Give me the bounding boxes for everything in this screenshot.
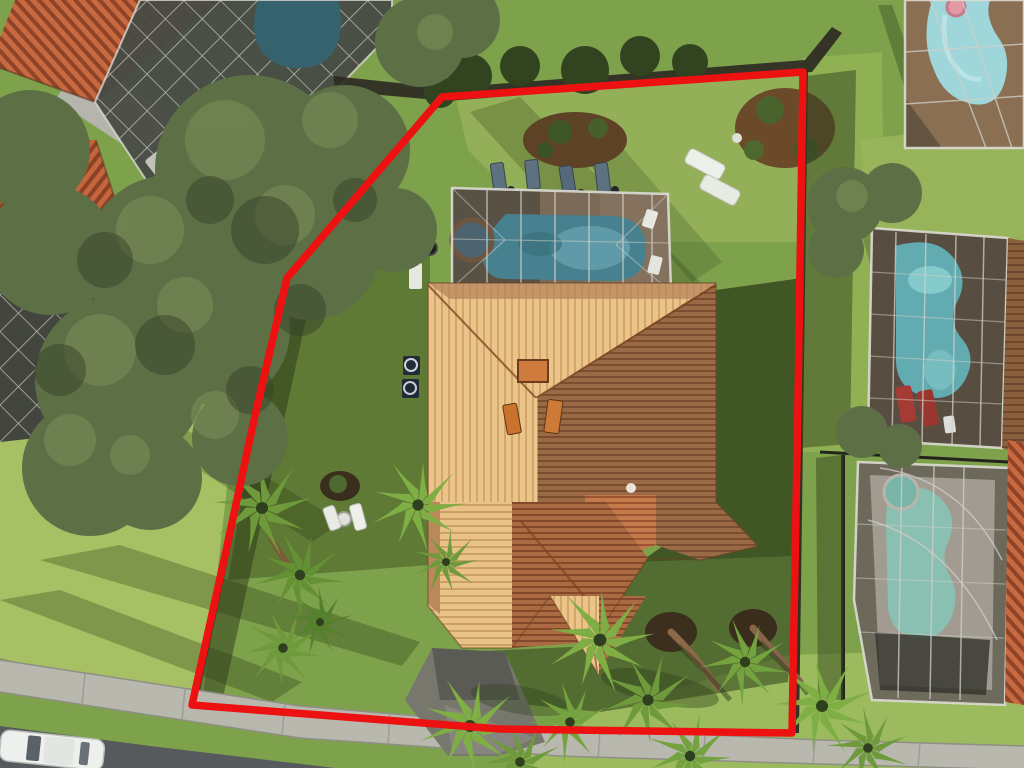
aerial-photo: Overhead aerial drone view of a tan tile… — [0, 0, 1024, 768]
neighbor-roof-right-edge — [1005, 440, 1024, 705]
neighbor-pool-top-right — [905, 0, 1024, 148]
neighbor-pool-middle-right — [868, 228, 1024, 455]
mulch-bed-rear-center — [523, 112, 627, 168]
chimney — [518, 360, 548, 382]
